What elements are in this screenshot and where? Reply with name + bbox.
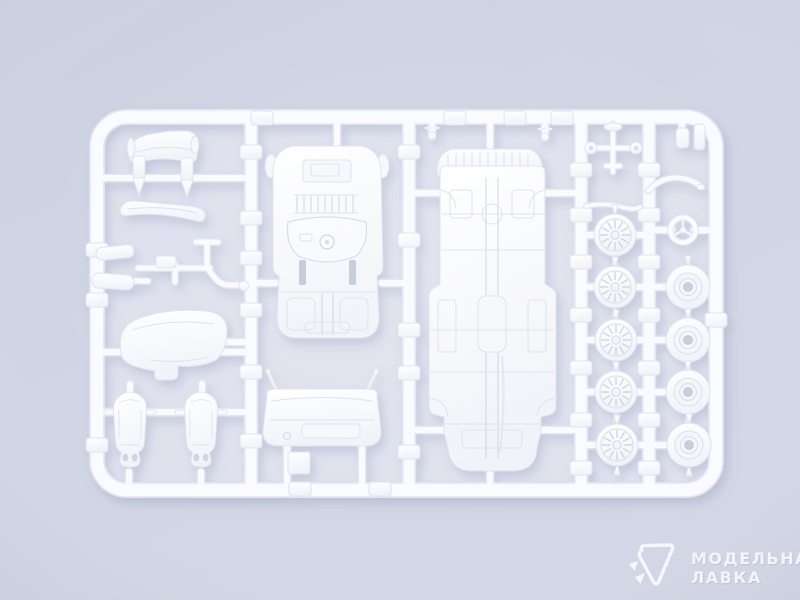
watermark-logo-icon — [626, 537, 682, 595]
watermark-text: МОДЕЛЬНАЯ ЛАВКА — [691, 549, 800, 595]
vignette-overlay — [0, 0, 800, 600]
photo-scene: МОДЕЛЬНАЯ ЛАВКА — [0, 0, 800, 600]
watermark: МОДЕЛЬНАЯ ЛАВКА — [626, 537, 800, 595]
sprue-photo-svg — [0, 0, 800, 600]
watermark-line1: МОДЕЛЬНАЯ — [691, 549, 800, 568]
watermark-line2: ЛАВКА — [691, 568, 800, 587]
